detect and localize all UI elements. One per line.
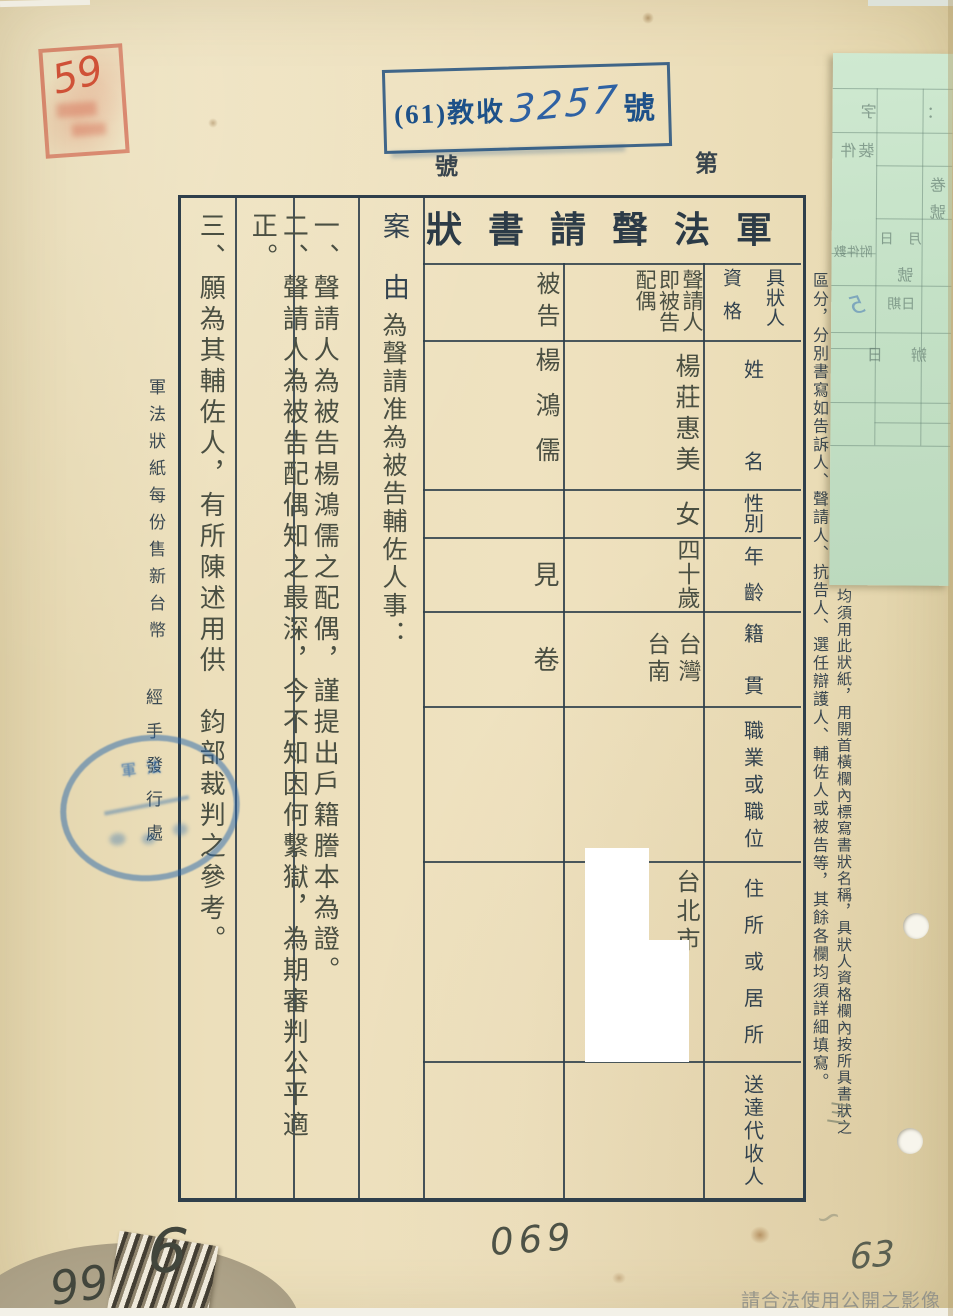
slip-mark: 字: [861, 98, 877, 122]
slip-mark: 日期: [887, 293, 915, 313]
slip-mark: 月 日: [880, 228, 922, 248]
label-name: 姓名: [738, 359, 767, 471]
scan-edge-bottom: [0, 1308, 953, 1316]
label-qualification: 資格: [717, 268, 744, 320]
red-handwritten-number: 59: [47, 47, 108, 104]
label-service-agent: 送達代收人: [738, 1074, 767, 1186]
scan-edge-right: [948, 0, 953, 1316]
slip-mark: 件: [840, 137, 856, 161]
scanned-document-page: 第 號 (61)教收 3257 號 59 軍法聲請書狀 案由 為聲請准為被告輔佐…: [0, 0, 953, 1316]
stamp-printed-text: (61)教收: [394, 89, 506, 131]
slip-mark: 卷: [930, 172, 946, 196]
scan-edge-topleft: [0, 0, 90, 7]
label-age: 年齡: [738, 546, 767, 602]
received-number-stamp: (61)教收 3257 號: [382, 62, 672, 154]
petitioner-name: 楊莊惠美: [563, 340, 735, 489]
label-native-place: 籍貫: [738, 623, 767, 695]
label-occupation: 職業或職位: [738, 720, 767, 848]
label-residence: 住所或居所: [738, 878, 767, 1044]
stamp-suffix: 號: [623, 82, 655, 128]
slip-mark: 附件數: [834, 241, 873, 260]
table-header-person: 資格 具狀人: [703, 265, 801, 343]
defendant-qualification: 被告: [423, 265, 577, 340]
petitioner-age: 四十歲: [563, 537, 733, 611]
petitioner-sex: 女: [563, 489, 733, 537]
form-title: 軍法聲請書狀: [423, 198, 801, 260]
petitioner-native-place: 台灣 台南: [563, 611, 729, 706]
slip-mark: 號: [897, 261, 913, 285]
price-note: 軍法狀紙每份售新台幣: [143, 378, 168, 648]
slip-mark: 日: [867, 341, 883, 365]
paper-stain: [612, 1272, 626, 1284]
defendant-age-note: 見: [423, 537, 577, 611]
defendant-name: 楊鴻儒: [423, 340, 577, 489]
slip-mark: 號: [930, 199, 946, 223]
slip-mark: 辦: [911, 342, 927, 366]
doc-number-prefix: 第: [695, 144, 718, 178]
defendant-native-note: 卷: [423, 611, 577, 706]
punch-hole-top: [903, 913, 929, 939]
paper-stain: [750, 1226, 770, 1244]
scan-edge-topright: [868, 0, 953, 6]
paper-stain: [642, 12, 654, 24]
petitioner-qualification: 聲請人 即被告 配偶: [563, 265, 713, 344]
slip-mark: ：: [919, 99, 935, 123]
slip-mark: 裝: [858, 137, 874, 161]
handwritten-6: 6: [145, 1212, 191, 1288]
handwritten-99: 99: [47, 1254, 112, 1316]
stamp-handwritten-number: 3257: [509, 77, 622, 132]
slip-blue-pencil-mark: 5: [846, 290, 867, 321]
instructions-inner: 區分，分別書寫如告訴人、聲請人、抗告人、選任辯護人、輔佐人或被告等，其餘各欄均須…: [806, 272, 830, 1091]
oval-stamp-text: 軍法: [90, 751, 202, 785]
punch-hole-bottom: [897, 1128, 923, 1154]
pencil-squiggle: ∽: [811, 1197, 846, 1238]
instructions-outer: 均須用此狀紙，用開首橫欄內標寫書狀名稱，具狀人資格欄內按所具書狀之: [833, 588, 854, 1136]
paper-stain: [208, 118, 218, 128]
label-person-header: 具狀人: [760, 268, 787, 328]
redaction-box: [648, 940, 689, 1062]
case-content: 為聲請准為被告輔佐人事：: [374, 312, 410, 648]
handwritten-63: 63: [850, 1234, 895, 1278]
case-label: 案由: [375, 212, 414, 300]
petition-form: 軍法聲請書狀 案由 為聲請准為被告輔佐人事： 一、聲請人為被告楊鴻儒之配偶，謹提…: [178, 195, 806, 1202]
label-sex: 性別: [738, 493, 767, 533]
red-registry-stamp: 59: [38, 43, 129, 159]
petition-item-1: 一、聲請人為被告楊鴻儒之配偶，謹提出戶籍謄本為證。: [309, 212, 340, 987]
handwritten-069: 069: [489, 1215, 577, 1264]
petition-item-2: 二、聲請人為被告配偶知之最深，今不知因何繫獄，為期審判公平適正。: [247, 212, 309, 1198]
green-attachment-slip: 字 ： 件 裝 卷 號 月 日 附件數 號 日期 日 辦 5: [829, 53, 953, 586]
redaction-box: [585, 848, 649, 1062]
